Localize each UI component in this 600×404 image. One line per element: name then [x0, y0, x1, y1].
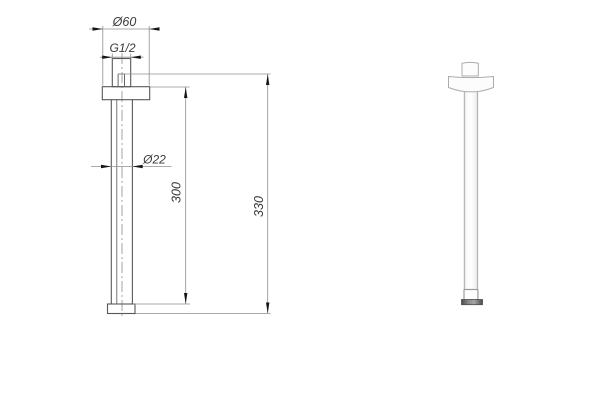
end-cap-outline — [108, 304, 136, 314]
arm-length-label: 300 — [169, 182, 183, 203]
dim-arrow-top — [266, 74, 269, 85]
shower-arm-outline — [102, 59, 149, 314]
flange-outline — [102, 87, 149, 100]
dim-arrow-right — [149, 27, 159, 30]
dim-arrow-top — [184, 87, 187, 98]
dim-arrow-left — [101, 165, 111, 168]
overall-length-label: 330 — [252, 196, 266, 217]
dim-arrow-left — [93, 27, 103, 30]
pipe-diameter-label: Ø22 — [142, 153, 166, 167]
render-end-section — [464, 290, 478, 300]
render-tube-body — [464, 86, 477, 290]
thread-stub-outline — [112, 59, 130, 87]
shower-arm-drawing-canvas: Ø60 G1/2 Ø22 — [0, 0, 600, 404]
dim-arrow-right — [131, 56, 141, 59]
render-flange — [449, 77, 494, 92]
dim-arrow-right — [132, 165, 142, 168]
render-end-cap — [462, 300, 483, 305]
technical-drawing-page: Ø60 G1/2 Ø22 — [0, 0, 600, 404]
dim-arrow-bottom — [266, 303, 269, 314]
dim-arrow-bottom — [184, 293, 187, 304]
thread-size-label: G1/2 — [109, 41, 135, 55]
orthographic-view: Ø60 G1/2 Ø22 — [89, 15, 271, 319]
flange-diameter-label: Ø60 — [112, 15, 137, 29]
render-thread-stub — [462, 62, 478, 76]
rendered-view — [449, 62, 494, 304]
dim-arm-length: 300 — [133, 87, 190, 304]
dim-arrow-left — [102, 56, 112, 59]
dim-overall-length: 330 — [118, 74, 270, 314]
dim-pipe-diameter: Ø22 — [91, 153, 172, 169]
